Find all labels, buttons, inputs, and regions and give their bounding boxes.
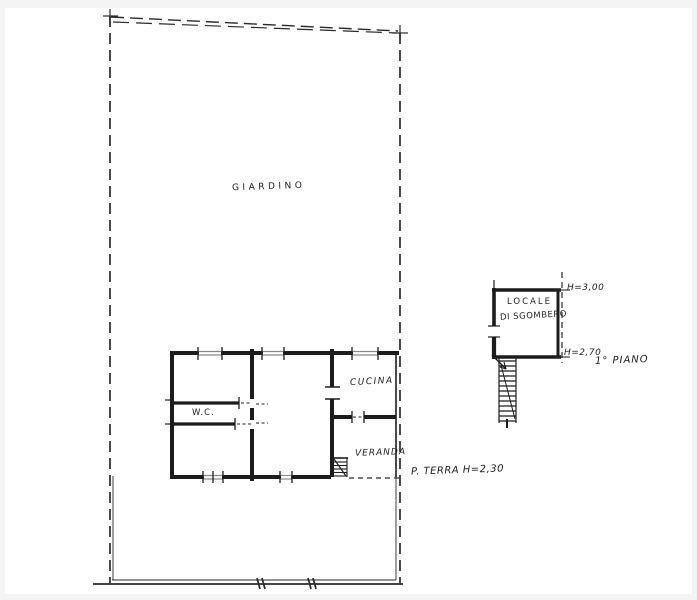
kitchen-veranda-divider bbox=[332, 411, 396, 423]
floor-plan-svg bbox=[0, 0, 697, 600]
property-boundary bbox=[93, 16, 403, 584]
veranda-staircase bbox=[332, 458, 348, 477]
screenshot-frame: GIARDINO CUCINA W.C. VERANDA P. TERRA H=… bbox=[0, 0, 697, 600]
boundary-corner-marks bbox=[103, 9, 408, 589]
wc-label: W.C. bbox=[192, 409, 215, 418]
interior-walls bbox=[252, 349, 340, 481]
storage-room-label-line1: LOCALE bbox=[507, 298, 552, 307]
storage-height-top-label: H=3,00 bbox=[567, 284, 604, 293]
veranda-label: VERANDA bbox=[355, 448, 406, 459]
first-floor-label: 1° PIANO bbox=[595, 355, 649, 367]
storage-staircase bbox=[492, 355, 516, 428]
